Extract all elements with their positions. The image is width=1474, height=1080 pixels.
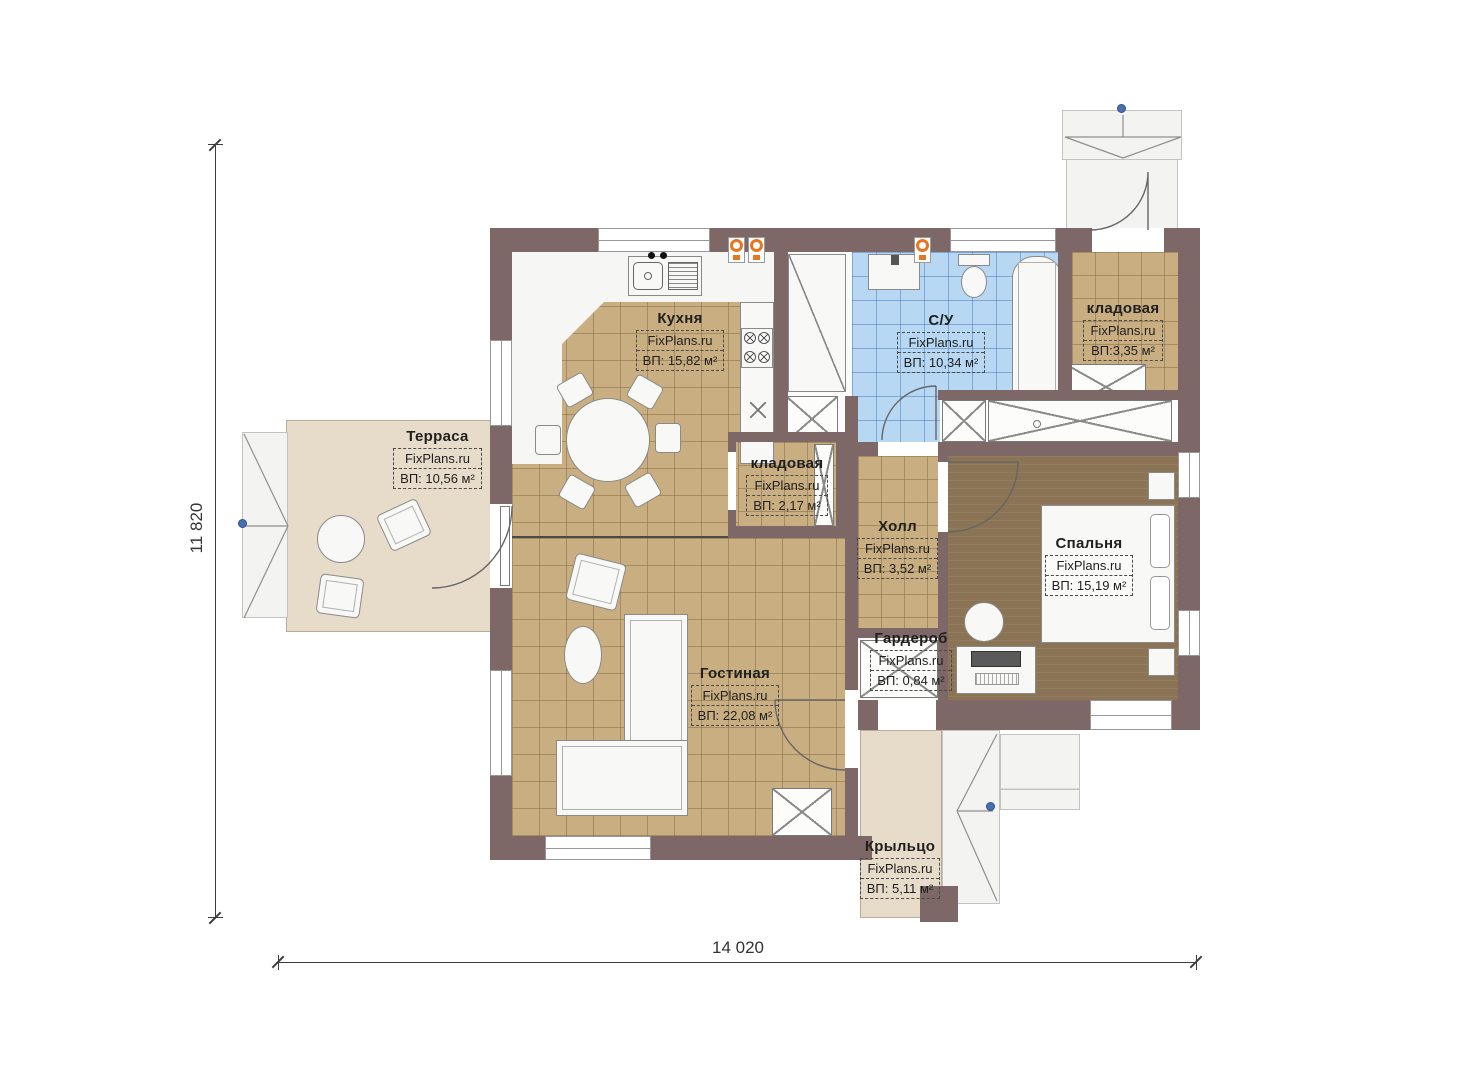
room-label-bathroom: С/У FixPlans.ru ВП: 10,34 м²: [866, 312, 1016, 373]
handle-dot-porch: [986, 802, 995, 811]
window-bathroom-top: [950, 228, 1056, 252]
room-area: ВП: 10,56 м²: [394, 468, 481, 488]
handle-dot-terrace: [238, 519, 247, 528]
kitchen-sink: [628, 256, 702, 296]
room-name: Кухня: [605, 310, 755, 327]
dining-chair: [535, 425, 561, 455]
wall-kitchen-shower: [774, 252, 788, 442]
room-info-box: FixPlans.ru ВП: 10,34 м²: [897, 332, 986, 373]
bathroom-sink: [868, 254, 920, 290]
wall-storage-bottom: [728, 526, 848, 538]
room-area: ВП: 5,11 м²: [861, 878, 939, 898]
dim-line-height: [215, 145, 216, 918]
wall-storage-top: [728, 432, 848, 442]
watermark-text: FixPlans.ru: [1084, 321, 1161, 340]
stove-burner: [758, 351, 770, 363]
toilet-tank: [958, 254, 990, 266]
window-living-bottom: [545, 836, 651, 860]
window-bottom-right: [1090, 700, 1172, 730]
sink-faucet: [891, 255, 899, 265]
door-arc-terrace: [430, 502, 514, 590]
room-area: ВП: 22,08 м²: [692, 705, 779, 725]
room-label-kitchen: Кухня FixPlans.ru ВП: 15,82 м²: [605, 310, 755, 371]
room-info-box: FixPlans.ru ВП: 3,52 м²: [857, 538, 938, 579]
sink-drain: [644, 272, 652, 280]
watermark-text: FixPlans.ru: [394, 449, 481, 468]
handle-dot-back-porch: [1117, 104, 1126, 113]
sink-drainer: [668, 262, 698, 290]
window-bedroom-right-b: [1178, 610, 1200, 656]
room-area: ВП:3,35 м²: [1084, 340, 1161, 360]
window-bedroom-right-a: [1178, 452, 1200, 498]
dining-table: [566, 398, 650, 482]
vent-marker: [914, 237, 931, 263]
room-name: С/У: [866, 312, 1016, 329]
room-area: ВП: 2,17 м²: [747, 495, 826, 515]
terrace-awning: [242, 432, 288, 618]
toilet-bowl: [961, 266, 987, 298]
kitchen-x-marker: [750, 402, 766, 418]
room-info-box: FixPlans.ru ВП: 15,82 м²: [636, 330, 725, 371]
floor-plan: Кухня FixPlans.ru ВП: 15,82 м² Терраса F…: [0, 0, 1474, 1080]
terrace-chair: [315, 573, 364, 619]
room-label-wardrobe: Гардероб FixPlans.ru ВП: 0,84 м²: [850, 630, 972, 691]
watermark-text: FixPlans.ru: [637, 331, 724, 350]
computer-monitor: [971, 651, 1021, 667]
room-label-porch: Крыльцо FixPlans.ru ВП: 5,11 м²: [838, 838, 962, 899]
dim-line-width: [278, 962, 1196, 963]
room-name: кладовая: [1064, 300, 1182, 317]
room-area: ВП: 10,34 м²: [898, 352, 985, 372]
watermark-text: FixPlans.ru: [858, 539, 937, 558]
window-kitchen-top: [598, 228, 710, 252]
terrace-table: [317, 515, 365, 563]
window-kitchen-left: [490, 340, 512, 426]
room-label-storage-right: кладовая FixPlans.ru ВП:3,35 м²: [1064, 300, 1182, 361]
watermark-text: FixPlans.ru: [898, 333, 985, 352]
wall-bath-bottom: [938, 390, 1200, 400]
room-info-box: FixPlans.ru ВП:3,35 м²: [1083, 320, 1162, 361]
dim-width-label: 14 020: [688, 938, 788, 958]
watermark-text: FixPlans.ru: [692, 686, 779, 705]
room-label-bedroom: Спальня FixPlans.ru ВП: 15,19 м²: [1024, 535, 1154, 596]
room-name: Гардероб: [850, 630, 972, 647]
faucet-dot: [660, 252, 667, 259]
dining-chair: [655, 423, 681, 453]
back-porch-awning: [1062, 110, 1182, 160]
room-area: ВП: 3,52 м²: [858, 558, 937, 578]
door-gap-porch: [878, 700, 936, 730]
dim-height-label: 11 820: [187, 483, 207, 573]
faucet-dot: [648, 252, 655, 259]
living-wardrobe: [772, 788, 832, 836]
room-name: Спальня: [1024, 535, 1154, 552]
door-gap-bathroom: [878, 442, 938, 456]
stove-burner: [758, 332, 770, 344]
nightstand: [1148, 472, 1175, 500]
room-label-storage-mid: кладовая FixPlans.ru ВП: 2,17 м²: [726, 455, 848, 516]
room-name: кладовая: [726, 455, 848, 472]
room-info-box: FixPlans.ru ВП: 2,17 м²: [746, 475, 827, 516]
bedroom-wardrobe-long: [988, 400, 1172, 442]
window-living-left: [490, 670, 512, 776]
door-arc-back: [1088, 166, 1152, 232]
room-area: ВП: 15,19 м²: [1046, 575, 1133, 595]
vent-marker: [728, 237, 745, 263]
room-info-box: FixPlans.ru ВП: 5,11 м²: [860, 858, 940, 899]
room-info-box: FixPlans.ru ВП: 22,08 м²: [691, 685, 780, 726]
room-label-terrace: Терраса FixPlans.ru ВП: 10,56 м²: [360, 428, 515, 489]
shower-cabin: [788, 254, 846, 392]
terrace-awning-lines: [243, 433, 289, 619]
room-label-hall: Холл FixPlans.ru ВП: 3,52 м²: [845, 518, 950, 579]
keyboard: [975, 673, 1019, 685]
door-arc-bathroom: [880, 382, 940, 442]
room-name: Холл: [845, 518, 950, 535]
back-awning-lines: [1063, 111, 1183, 161]
room-name: Крыльцо: [838, 838, 962, 855]
bathtub-drain: [1033, 420, 1041, 428]
bedroom-wardrobe-small: [942, 400, 986, 442]
room-info-box: FixPlans.ru ВП: 10,56 м²: [393, 448, 482, 489]
room-name: Терраса: [360, 428, 515, 445]
porch-steps: [1000, 734, 1080, 810]
door-arc-bedroom: [946, 460, 1020, 534]
room-info-box: FixPlans.ru ВП: 0,84 м²: [870, 650, 951, 691]
sofa-horizontal: [556, 740, 688, 816]
room-name: Гостиная: [670, 665, 800, 682]
nightstand: [1148, 648, 1175, 676]
room-info-box: FixPlans.ru ВП: 15,19 м²: [1045, 555, 1134, 596]
vent-marker: [748, 237, 765, 263]
room-label-living: Гостиная FixPlans.ru ВП: 22,08 м²: [670, 665, 800, 726]
watermark-text: FixPlans.ru: [1046, 556, 1133, 575]
watermark-text: FixPlans.ru: [861, 859, 939, 878]
room-area: ВП: 0,84 м²: [871, 670, 950, 690]
watermark-text: FixPlans.ru: [747, 476, 826, 495]
coffee-table: [564, 626, 602, 684]
watermark-text: FixPlans.ru: [871, 651, 950, 670]
room-area: ВП: 15,82 м²: [637, 350, 724, 370]
